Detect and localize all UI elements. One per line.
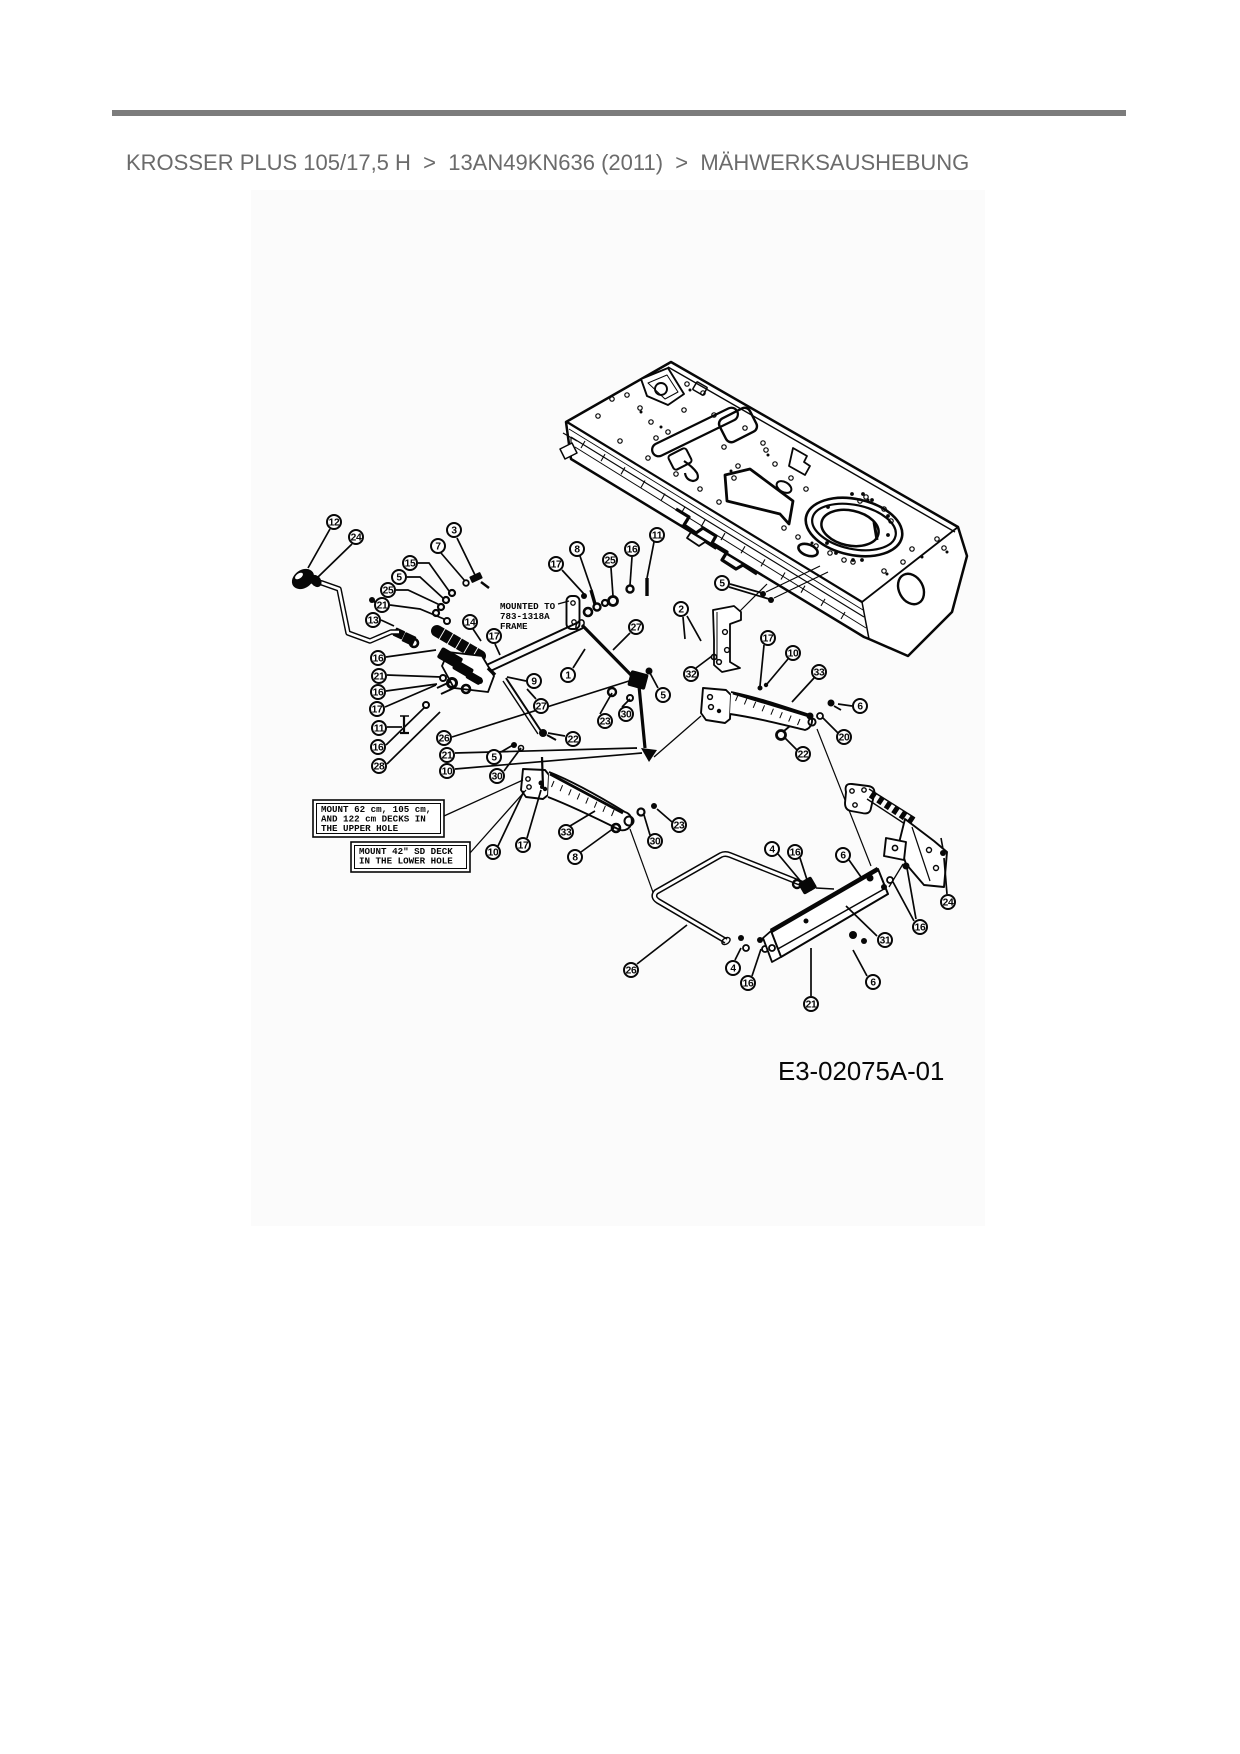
svg-text:25: 25 — [383, 586, 394, 597]
svg-text:17: 17 — [518, 841, 529, 852]
svg-text:E3-02075A-01: E3-02075A-01 — [778, 1058, 944, 1086]
svg-text:20: 20 — [839, 733, 850, 744]
svg-text:22: 22 — [568, 735, 579, 746]
svg-text:5: 5 — [660, 691, 666, 702]
svg-text:1: 1 — [565, 671, 571, 682]
svg-text:KROSSER PLUS 105/17,5 H > 13: KROSSER PLUS 105/17,5 H > 13AN49KN636 (2… — [126, 150, 969, 175]
svg-text:14: 14 — [465, 618, 476, 629]
svg-text:11: 11 — [374, 724, 385, 735]
svg-text:16: 16 — [627, 545, 638, 556]
svg-text:30: 30 — [621, 710, 632, 721]
svg-text:13: 13 — [368, 616, 379, 627]
svg-text:12: 12 — [329, 518, 340, 529]
svg-text:10: 10 — [488, 848, 499, 859]
svg-text:16: 16 — [790, 848, 801, 859]
svg-text:5: 5 — [396, 573, 402, 584]
svg-text:16: 16 — [373, 654, 384, 665]
svg-text:16: 16 — [743, 979, 754, 990]
svg-text:17: 17 — [763, 634, 774, 645]
svg-text:21: 21 — [442, 751, 453, 762]
svg-text:3: 3 — [451, 526, 457, 537]
svg-text:8: 8 — [572, 853, 578, 864]
svg-text:26: 26 — [626, 966, 637, 977]
svg-text:17: 17 — [489, 632, 500, 643]
svg-text:8: 8 — [574, 545, 580, 556]
svg-text:22: 22 — [798, 750, 809, 761]
svg-text:23: 23 — [600, 717, 611, 728]
svg-text:2: 2 — [678, 605, 684, 616]
svg-text:5: 5 — [491, 753, 497, 764]
svg-text:17: 17 — [551, 560, 562, 571]
svg-text:17: 17 — [372, 705, 383, 716]
svg-text:21: 21 — [377, 601, 388, 612]
svg-text:16: 16 — [915, 923, 926, 934]
svg-text:11: 11 — [652, 531, 663, 542]
svg-text:9: 9 — [531, 677, 537, 688]
svg-text:25: 25 — [605, 556, 616, 567]
svg-text:24: 24 — [351, 533, 362, 544]
svg-text:4: 4 — [730, 964, 736, 975]
svg-text:16: 16 — [373, 688, 384, 699]
svg-text:6: 6 — [840, 851, 846, 862]
svg-text:27: 27 — [631, 623, 642, 634]
svg-text:32: 32 — [686, 670, 697, 681]
svg-text:7: 7 — [435, 542, 441, 553]
svg-text:FRAME: FRAME — [500, 621, 528, 632]
svg-text:30: 30 — [650, 837, 661, 848]
svg-text:21: 21 — [806, 1000, 817, 1011]
svg-text:10: 10 — [788, 649, 799, 660]
svg-text:27: 27 — [536, 702, 547, 713]
svg-text:10: 10 — [442, 767, 453, 778]
svg-text:28: 28 — [374, 762, 385, 773]
svg-text:6: 6 — [857, 702, 863, 713]
svg-text:16: 16 — [373, 743, 384, 754]
svg-text:6: 6 — [870, 978, 876, 989]
svg-text:24: 24 — [943, 898, 954, 909]
svg-text:4: 4 — [769, 845, 775, 856]
svg-text:15: 15 — [405, 559, 416, 570]
svg-text:23: 23 — [674, 821, 685, 832]
svg-text:IN THE LOWER HOLE: IN THE LOWER HOLE — [359, 856, 453, 867]
svg-text:33: 33 — [561, 828, 572, 839]
svg-text:5: 5 — [719, 579, 725, 590]
svg-text:31: 31 — [880, 936, 891, 947]
svg-text:26: 26 — [439, 734, 450, 745]
svg-text:21: 21 — [374, 672, 385, 683]
svg-text:30: 30 — [492, 772, 503, 783]
svg-text:33: 33 — [814, 668, 825, 679]
svg-text:THE UPPER HOLE: THE UPPER HOLE — [321, 823, 399, 834]
